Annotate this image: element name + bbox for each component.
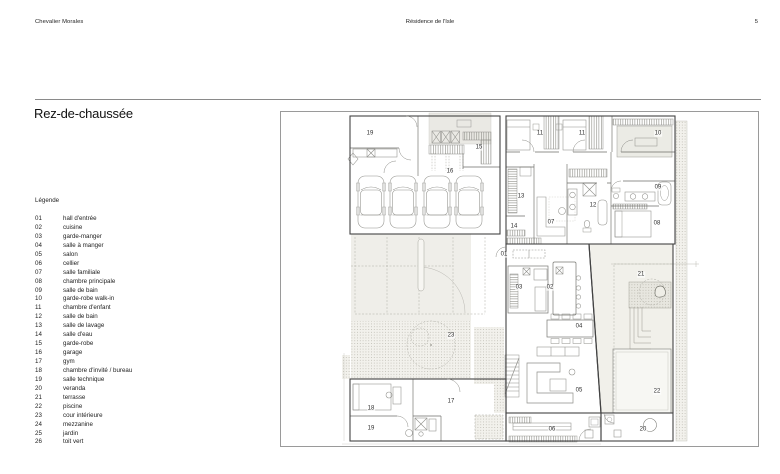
legend-item-code: 07 [35,269,63,276]
legend-item: 09salle de bain [35,287,205,296]
legend-item-code: 17 [35,358,63,365]
legend-item-code: 25 [35,430,63,437]
legend-item: 08chambre principale [35,278,205,287]
legend-item-label: terrasse [63,394,85,401]
legend-item-label: salon [63,251,78,258]
legend-item-code: 18 [35,367,63,374]
legend-item-label: jardin [63,430,78,437]
legend-item-label: cellier [63,260,79,267]
legend-item: 04salle à manger [35,242,205,251]
legend-item-label: garde-robe walk-in [63,295,114,302]
legend-item-code: 15 [35,340,63,347]
legend-item-code: 01 [35,215,63,222]
legend-item-code: 22 [35,403,63,410]
legend-item-label: cour intérieure [63,412,103,419]
legend-item-code: 04 [35,242,63,249]
legend-item-label: gym [63,358,75,365]
legend-item-label: chambre d'invité / bureau [63,367,132,374]
header-rule [35,99,761,100]
legend-item-code: 03 [35,233,63,240]
legend-item-label: garde-robe [63,340,93,347]
legend-item: 15garde-robe [35,340,205,349]
legend-item: 26toit vert [35,438,205,447]
legend-item: 10garde-robe walk-in [35,295,205,304]
legend-item: 01hall d'entrée [35,215,205,224]
legend-item: 03garde-manger [35,233,205,242]
legend-item-label: piscine [63,403,82,410]
legend-item: 21terrasse [35,394,205,403]
legend-item-label: salle à manger [63,242,104,249]
legend-item-label: salle technique [63,376,104,383]
legend-item-code: 08 [35,278,63,285]
legend-item: 07salle familiale [35,269,205,278]
header-page-number: 5 [755,19,758,25]
legend-item-code: 23 [35,412,63,419]
legend-item-code: 13 [35,322,63,329]
legend-item-label: salle de lavage [63,322,104,329]
legend-item-code: 11 [35,304,63,311]
legend-item-code: 10 [35,295,63,302]
legend-item-label: chambre d'enfant [63,304,111,311]
document-page: Chevalier Morales Résidence de l'Isle 5 … [0,0,780,474]
legend-item: 12salle de bain [35,313,205,322]
legend-item-label: garage [63,349,82,356]
legend-item-code: 06 [35,260,63,267]
legend-item-code: 24 [35,421,63,428]
legend-item: 14salle d'eau [35,331,205,340]
legend-item-code: 09 [35,287,63,294]
legend-item-label: veranda [63,385,85,392]
legend-item-code: 19 [35,376,63,383]
legend-item: 11chambre d'enfant [35,304,205,313]
legend-item: 24mezzanine [35,421,205,430]
page-title: Rez-de-chaussée [34,106,133,121]
legend-item-code: 14 [35,331,63,338]
floor-plan-drawing [281,112,760,448]
legend-item-code: 05 [35,251,63,258]
legend-heading: Légende [35,197,59,204]
legend-item-label: salle familiale [63,269,100,276]
legend-item-label: toit vert [63,438,83,445]
legend-item-label: salle d'eau [63,331,92,338]
floor-plan: 1915161111101312090814070103022104230522… [280,111,759,447]
legend-item: 05salon [35,251,205,260]
header-author: Chevalier Morales [35,19,83,25]
legend-item: 16garage [35,349,205,358]
legend-item: 22piscine [35,403,205,412]
legend-item: 23cour intérieure [35,412,205,421]
legend-item: 02cuisine [35,224,205,233]
legend-item-code: 20 [35,385,63,392]
legend-item-label: garde-manger [63,233,102,240]
legend-item: 25jardin [35,430,205,439]
legend-list: 01hall d'entrée02cuisine03garde-manger04… [35,215,205,447]
legend-item-label: salle de bain [63,313,98,320]
legend-item-code: 02 [35,224,63,231]
legend-item: 13salle de lavage [35,322,205,331]
legend-item-code: 26 [35,438,63,445]
legend-item-code: 16 [35,349,63,356]
legend-item-label: hall d'entrée [63,215,97,222]
legend-item: 20veranda [35,385,205,394]
legend-item-label: salle de bain [63,287,98,294]
legend-item-code: 12 [35,313,63,320]
legend-item: 18chambre d'invité / bureau [35,367,205,376]
legend-item-label: cuisine [63,224,82,231]
car-icon [357,176,484,228]
legend-item: 19salle technique [35,376,205,385]
legend-item: 06cellier [35,260,205,269]
legend-item-label: chambre principale [63,278,115,285]
legend-item: 17gym [35,358,205,367]
legend-item-label: mezzanine [63,421,93,428]
header-project-title: Résidence de l'Isle [406,19,454,25]
legend-item-code: 21 [35,394,63,401]
